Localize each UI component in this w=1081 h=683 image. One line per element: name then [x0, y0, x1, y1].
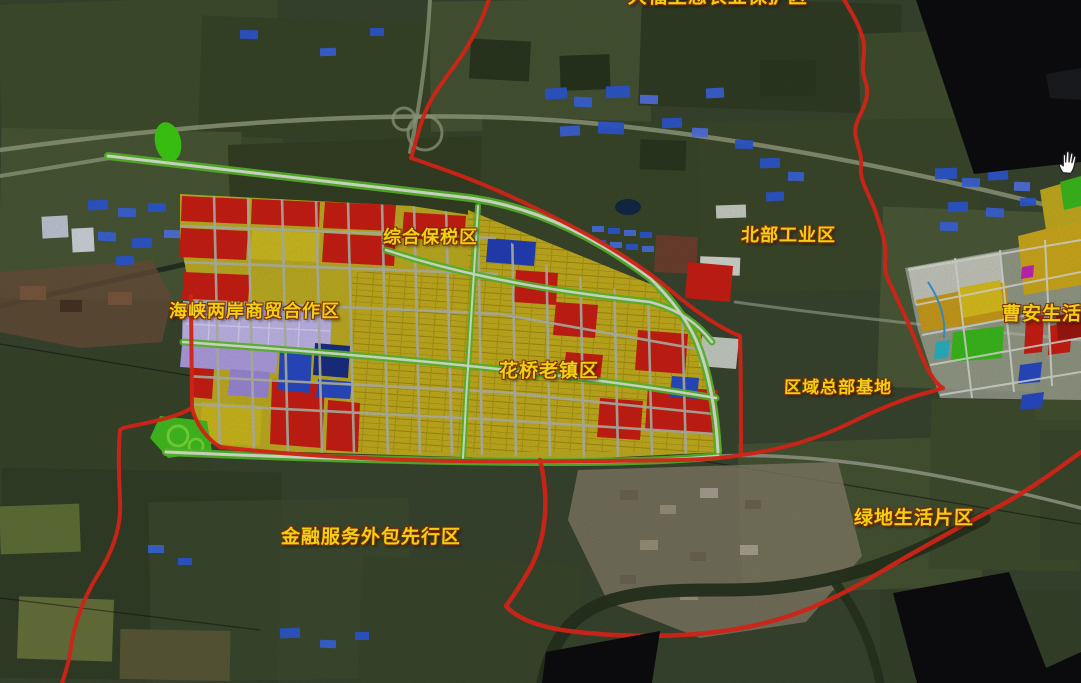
- zone-label-caoan-living: 曹安生活区: [1002, 304, 1081, 325]
- zone-label-financial-outsourcing: 金融服务外包先行区: [281, 527, 462, 548]
- zone-label-north-industrial: 北部工业区: [741, 226, 837, 246]
- zone-label-cross-strait-trade: 海峡两岸商贸合作区: [169, 302, 341, 322]
- hand-grab-cursor-icon: [1057, 149, 1079, 175]
- zone-label-huaqiao-old-town: 花桥老镇区: [499, 361, 600, 382]
- zone-label-comprehensive-bonded: 综合保税区: [383, 228, 479, 248]
- map-viewport[interactable]: 大福生态农业保护区 综合保税区 北部工业区 海峡两岸商贸合作区 花桥老镇区 区域…: [0, 0, 1081, 683]
- satellite-planning-map[interactable]: [0, 0, 1081, 683]
- zone-label-greenland-living: 绿地生活片区: [854, 508, 975, 529]
- zone-label-regional-hq-base: 区域总部基地: [784, 379, 893, 398]
- image-grain: [0, 0, 1081, 683]
- zone-label-dafu-eco-agriculture: 大福生态农业保护区: [628, 0, 809, 8]
